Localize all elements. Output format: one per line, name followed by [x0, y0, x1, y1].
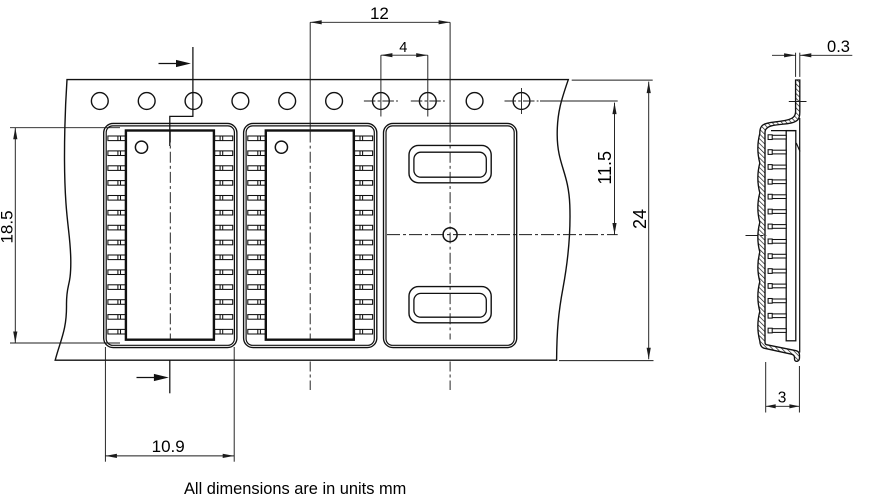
svg-text:24: 24 — [630, 209, 650, 229]
svg-text:11.5: 11.5 — [595, 151, 615, 185]
svg-text:0.3: 0.3 — [827, 38, 850, 56]
svg-text:10.9: 10.9 — [152, 437, 185, 456]
svg-text:All dimensions are in units mm: All dimensions are in units mm — [184, 480, 406, 495]
svg-text:3: 3 — [778, 390, 787, 407]
svg-text:12: 12 — [370, 4, 389, 23]
svg-text:4: 4 — [399, 40, 407, 56]
svg-text:18.5: 18.5 — [0, 210, 16, 243]
